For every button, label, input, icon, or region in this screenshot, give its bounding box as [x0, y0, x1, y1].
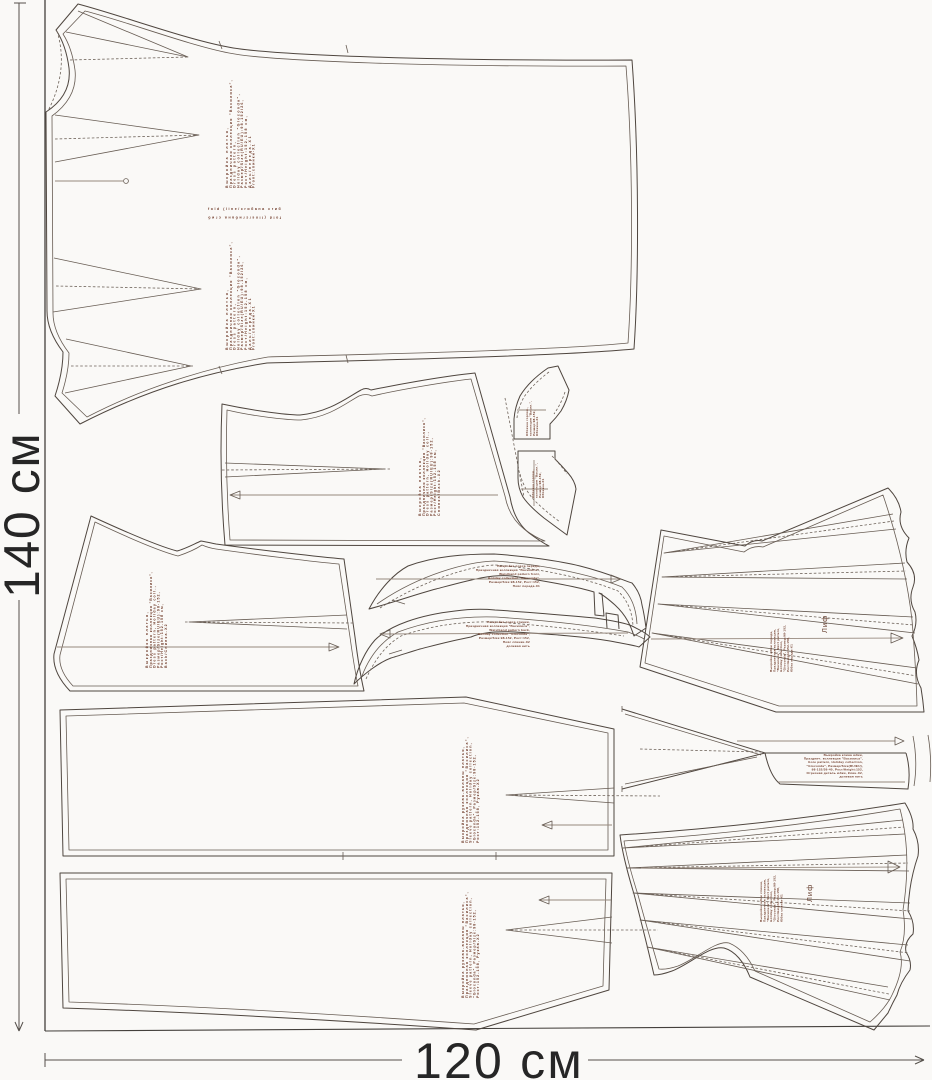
svg-text:Обтачка-Х1: Обтачка-Х1	[535, 416, 539, 436]
svg-text:Юбка спинки-Х1: Юбка спинки-Х1	[779, 894, 783, 922]
svg-text:долевая нить: долевая нить	[840, 775, 864, 779]
svg-text:140 см: 140 см	[0, 432, 50, 598]
svg-text:Юбка переда-Х1: Юбка переда-Х1	[789, 644, 793, 672]
svg-text:Обтачка-Х1: Обтачка-Х1	[541, 478, 545, 498]
svg-text:Front:спинки-Х1: Front:спинки-Х1	[252, 144, 256, 188]
svg-text:fold (line/сгибана сгиб: fold (line/сгибана сгиб	[208, 216, 281, 220]
svg-text:Пояс переда-Х1: Пояс переда-Х1	[513, 584, 540, 588]
svg-text:Спинка/Back-Х2: Спинка/Back-Х2	[437, 470, 441, 516]
svg-text:Лиф: Лиф	[820, 615, 829, 633]
svg-text:Рост:152-158, Рукав-Х2: Рост:152-158, Рукав-Х2	[476, 934, 480, 998]
svg-text:Лиф: Лиф	[805, 884, 814, 902]
svg-text:Back/Спинка-Х2: Back/Спинка-Х2	[164, 624, 168, 668]
svg-text:долевая нить: долевая нить	[507, 644, 531, 648]
svg-text:Рост:152-158, Рукав-Х2: Рост:152-158, Рукав-Х2	[476, 779, 480, 843]
svg-text:120 см: 120 см	[414, 1033, 584, 1080]
svg-text:fold (line/сгибана сгиб: fold (line/сгибана сгиб	[208, 207, 281, 211]
svg-text:Front:спинки-Х1: Front:спинки-Х1	[252, 306, 256, 350]
